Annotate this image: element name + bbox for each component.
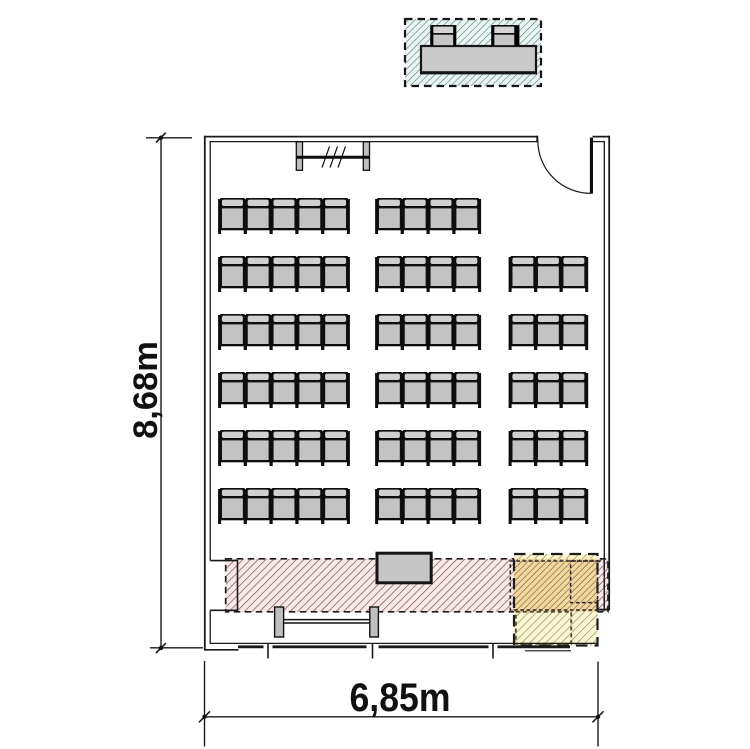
svg-text:8,68m: 8,68m (127, 341, 165, 439)
svg-text:6,85m: 6,85m (350, 676, 451, 720)
